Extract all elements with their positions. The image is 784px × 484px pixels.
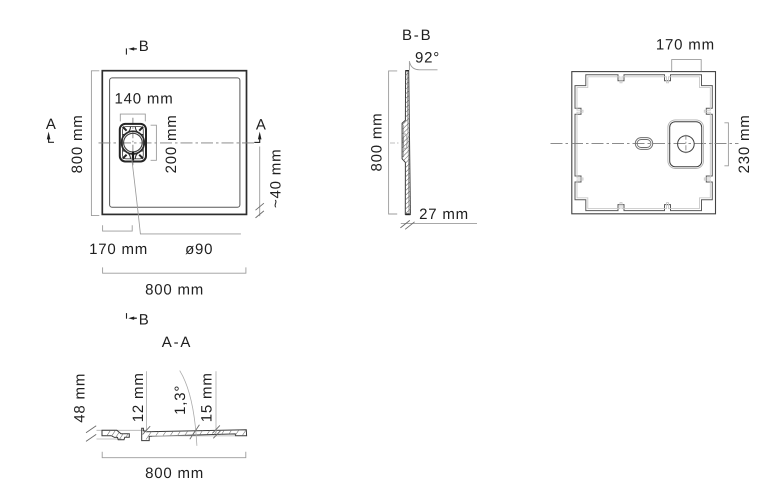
svg-text:15 mm: 15 mm [199, 372, 216, 422]
svg-text:170 mm: 170 mm [89, 241, 148, 258]
svg-text:140 mm: 140 mm [115, 91, 174, 108]
svg-text:A-A: A-A [162, 334, 192, 351]
svg-text:800 mm: 800 mm [369, 113, 386, 172]
svg-text:800 mm: 800 mm [145, 465, 204, 482]
svg-text:A: A [256, 117, 267, 134]
svg-text:B-B: B-B [402, 27, 432, 44]
svg-text:200 mm: 200 mm [163, 114, 180, 173]
svg-text:A: A [46, 116, 57, 133]
svg-text:800 mm: 800 mm [69, 114, 86, 173]
svg-text:230 mm: 230 mm [736, 114, 753, 173]
svg-text:B: B [139, 311, 150, 328]
svg-text:1,3°: 1,3° [172, 385, 189, 415]
svg-text:B: B [139, 38, 150, 55]
svg-text:48 mm: 48 mm [72, 373, 89, 423]
svg-text:27 mm: 27 mm [419, 206, 469, 223]
svg-text:12 mm: 12 mm [130, 372, 147, 422]
svg-text:170 mm: 170 mm [656, 37, 715, 54]
svg-text:92°: 92° [415, 50, 440, 67]
svg-text:~40 mm: ~40 mm [267, 149, 284, 208]
svg-text:800 mm: 800 mm [145, 282, 204, 299]
svg-text:ø90: ø90 [185, 241, 213, 258]
